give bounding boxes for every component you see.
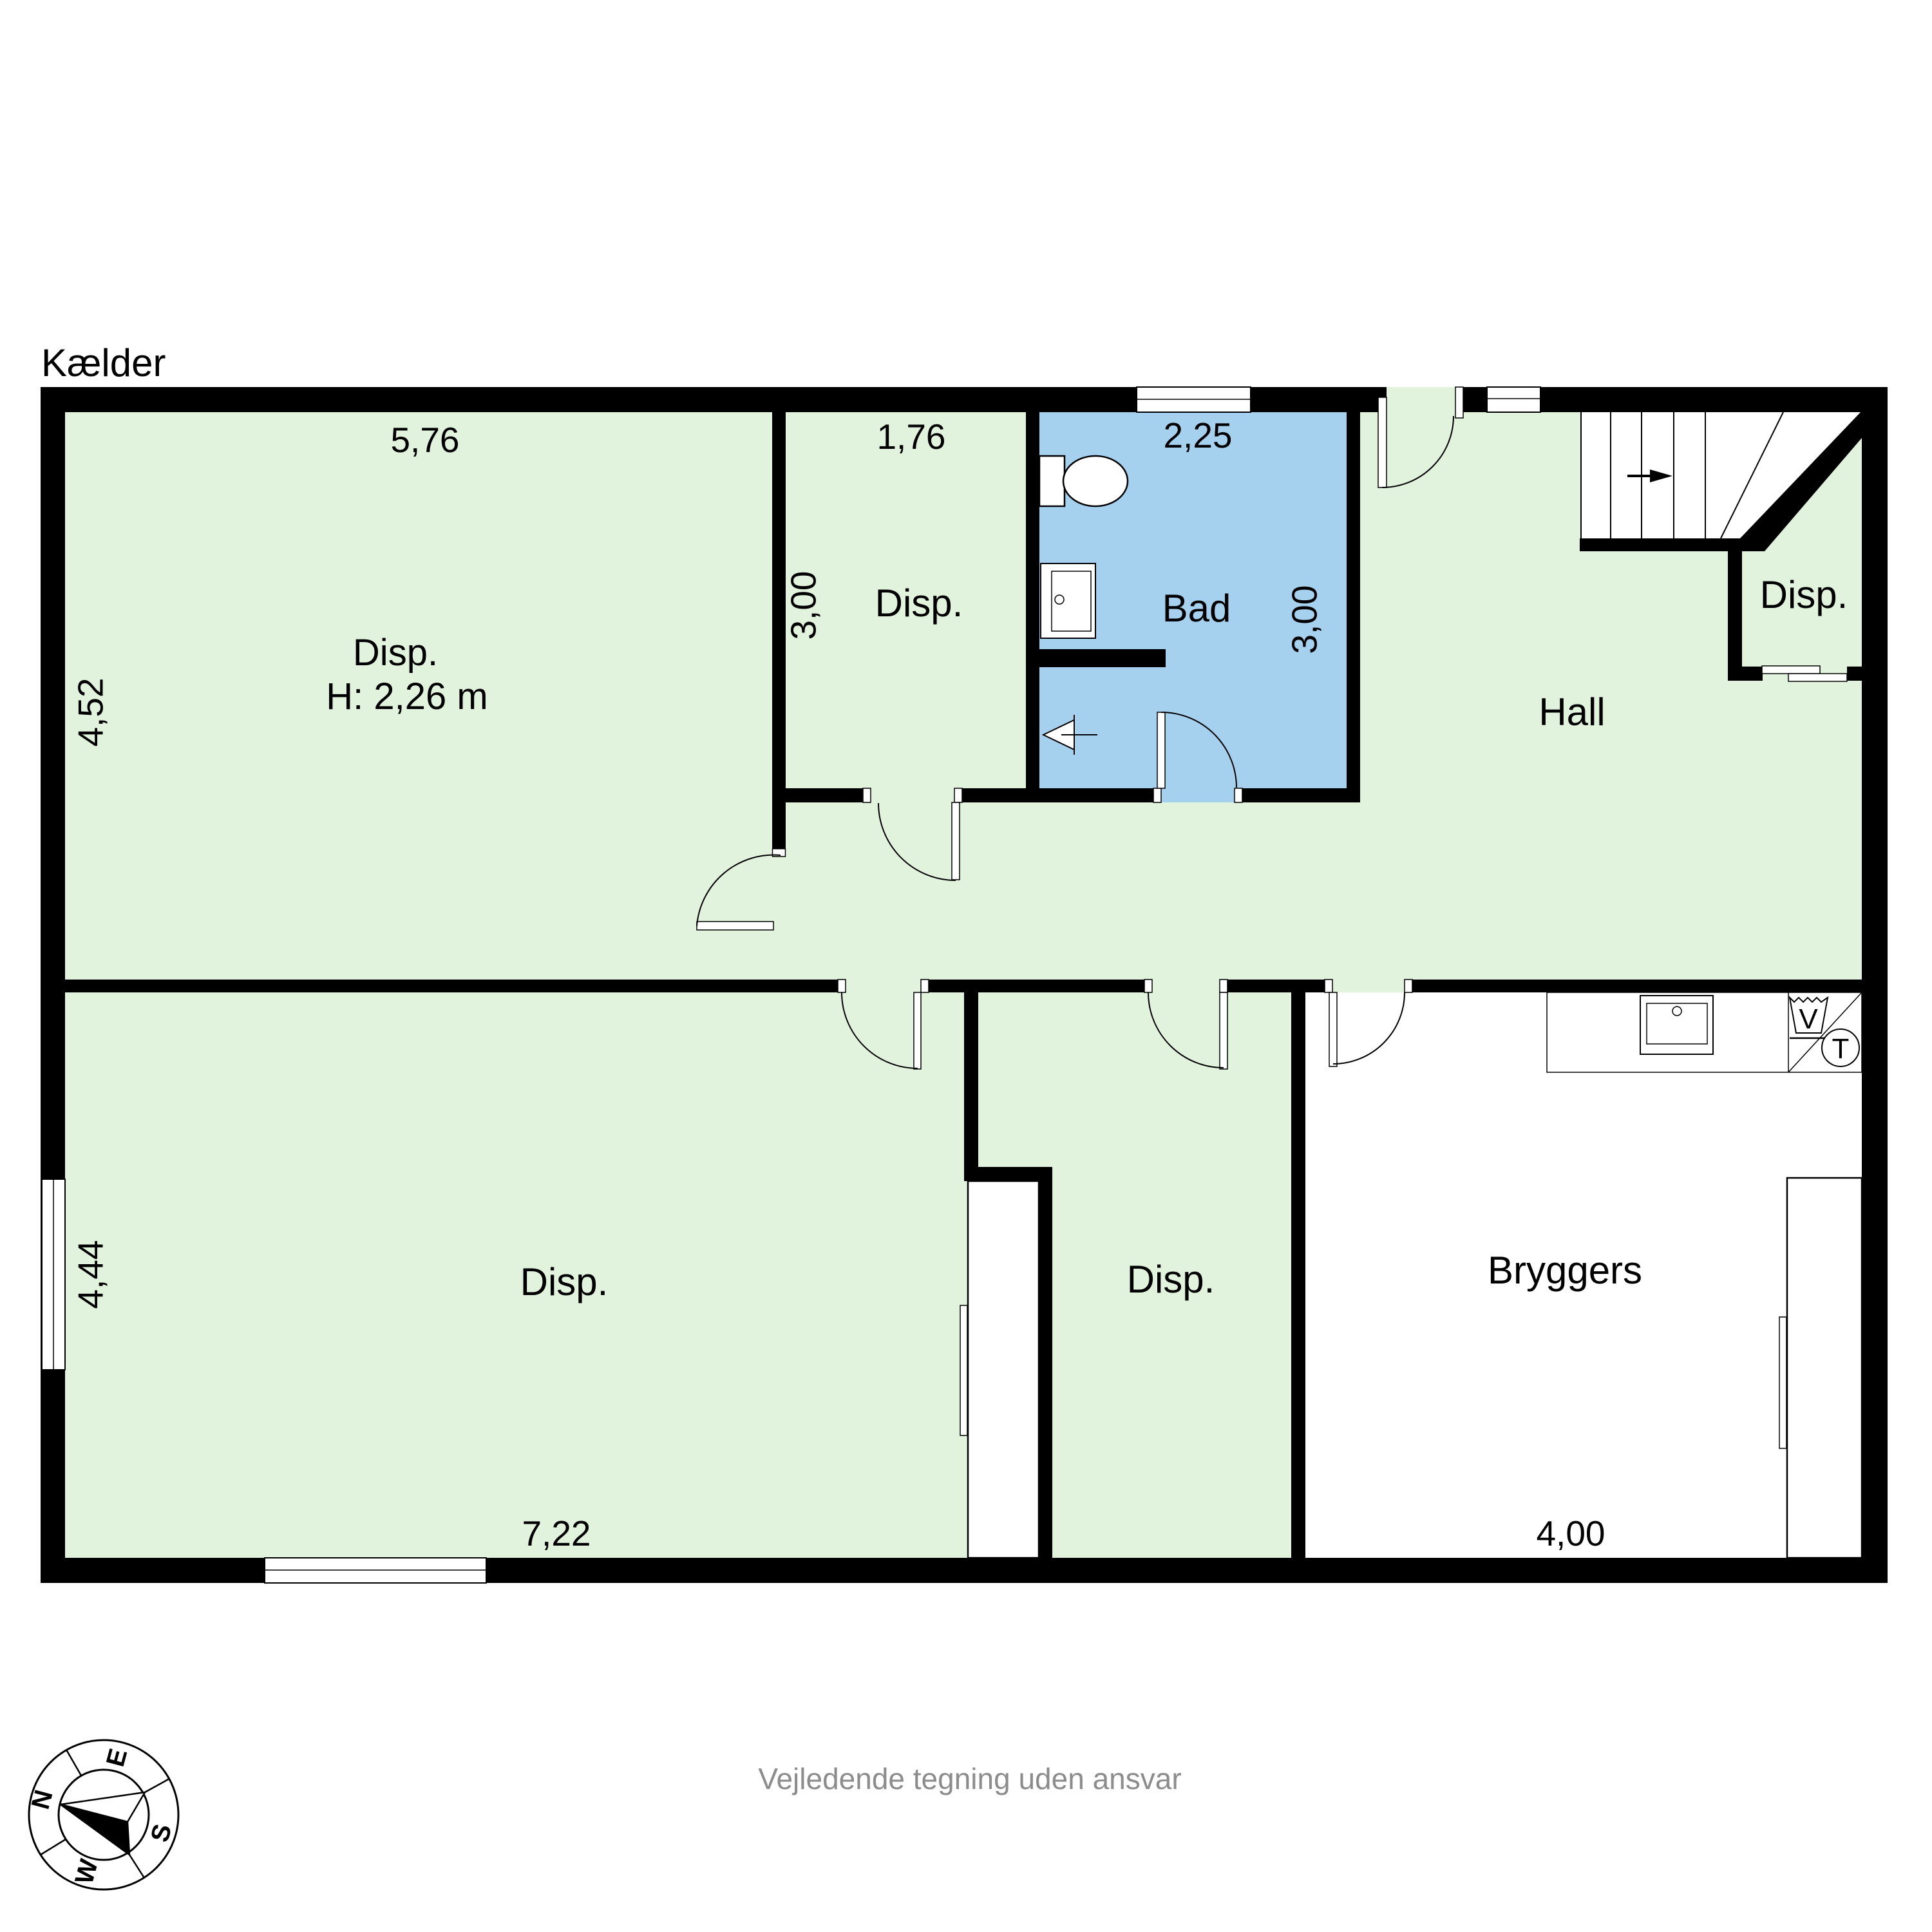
svg-text:T: T	[1832, 1033, 1850, 1065]
svg-text:1,76: 1,76	[876, 417, 945, 457]
svg-text:Vejledende tegning uden ansvar: Vejledende tegning uden ansvar	[758, 1762, 1181, 1795]
svg-text:V: V	[1799, 1003, 1818, 1035]
svg-text:Disp.: Disp.	[353, 632, 438, 674]
svg-text:Hall: Hall	[1539, 690, 1605, 734]
svg-text:Kælder: Kælder	[41, 341, 166, 384]
svg-text:Disp.: Disp.	[875, 582, 963, 625]
svg-text:2,25: 2,25	[1163, 415, 1232, 455]
svg-text:5,76: 5,76	[390, 420, 459, 460]
svg-text:4,00: 4,00	[1536, 1513, 1605, 1553]
svg-text:3,00: 3,00	[1285, 585, 1325, 654]
svg-text:7,22: 7,22	[522, 1513, 591, 1553]
svg-text:Bryggers: Bryggers	[1488, 1249, 1642, 1292]
svg-text:H: 2,26 m: H: 2,26 m	[326, 676, 488, 717]
svg-text:Disp.: Disp.	[1760, 573, 1848, 616]
svg-text:4,44: 4,44	[71, 1240, 111, 1309]
svg-text:Bad: Bad	[1162, 587, 1231, 630]
svg-text:3,00: 3,00	[784, 571, 824, 639]
svg-text:4,52: 4,52	[71, 677, 111, 746]
svg-text:Disp.: Disp.	[1127, 1258, 1215, 1301]
svg-text:Disp.: Disp.	[520, 1260, 609, 1303]
